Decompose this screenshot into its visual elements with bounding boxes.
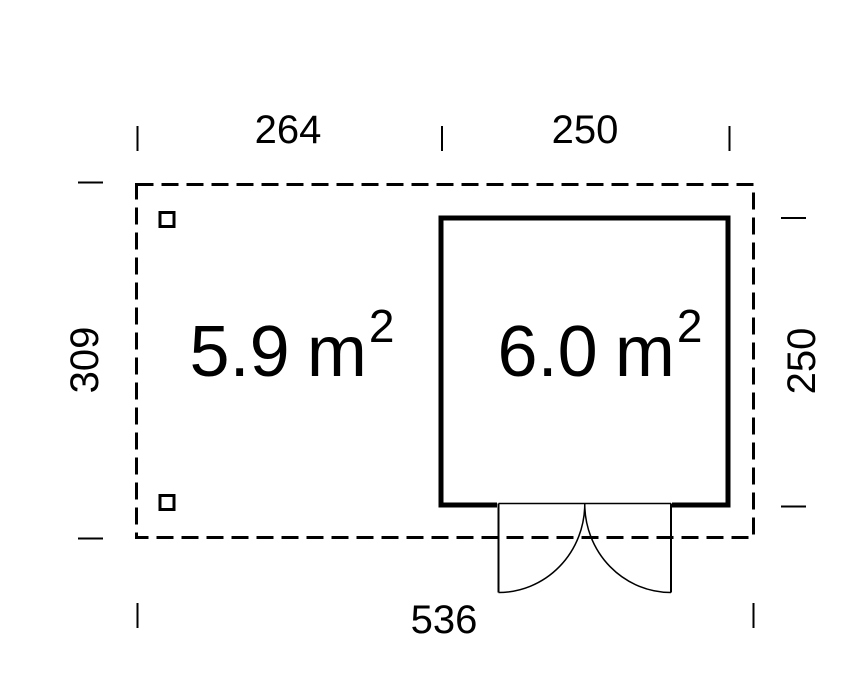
area-exponent: 2 <box>369 300 395 352</box>
area-unit: m <box>615 312 675 392</box>
dimension-label-bottom-width: 536 <box>369 598 519 642</box>
dimension-label-top-left-width: 264 <box>213 108 363 152</box>
post-marker-top <box>160 213 174 227</box>
area-label-open-section: 5.9m2 <box>122 297 462 407</box>
area-exponent: 2 <box>677 300 703 352</box>
area-value: 6.0 <box>498 312 598 392</box>
dimension-label-right-height: 250 <box>780 286 824 436</box>
floor-plan-canvas: 264 250 309 250 536 5.9m2 6.0m2 <box>0 0 865 687</box>
dimension-label-left-height: 309 <box>63 285 107 435</box>
dimension-label-top-right-width: 250 <box>510 108 660 152</box>
door-left-swing-arc <box>499 504 585 593</box>
post-marker-bottom <box>160 496 174 510</box>
area-value: 5.9 <box>190 312 290 392</box>
door-right-swing-arc <box>585 504 671 593</box>
area-unit: m <box>307 312 367 392</box>
area-label-cabin-section: 6.0m2 <box>430 297 770 407</box>
